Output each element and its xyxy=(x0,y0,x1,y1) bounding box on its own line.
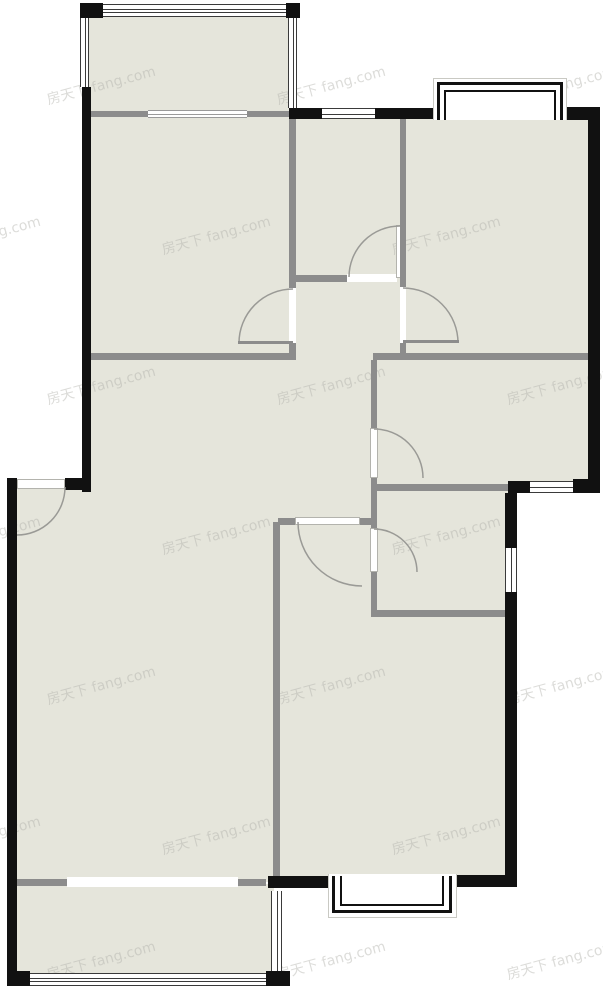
door-swing-arc xyxy=(239,289,293,343)
door-swing-arc xyxy=(403,288,458,343)
door-leaf xyxy=(403,340,459,343)
floor-plan-canvas: 房天下 fang.com房天下 fang.com房天下 fang.com房天下 … xyxy=(0,0,603,989)
door-arc-layer xyxy=(0,0,603,989)
door-leaf xyxy=(238,341,293,344)
door-swing-arc xyxy=(17,487,65,535)
door-swing-arc xyxy=(374,429,423,478)
door-swing-arc xyxy=(349,226,400,277)
door-swing-arc xyxy=(374,529,417,572)
door-swing-arc xyxy=(298,522,362,586)
